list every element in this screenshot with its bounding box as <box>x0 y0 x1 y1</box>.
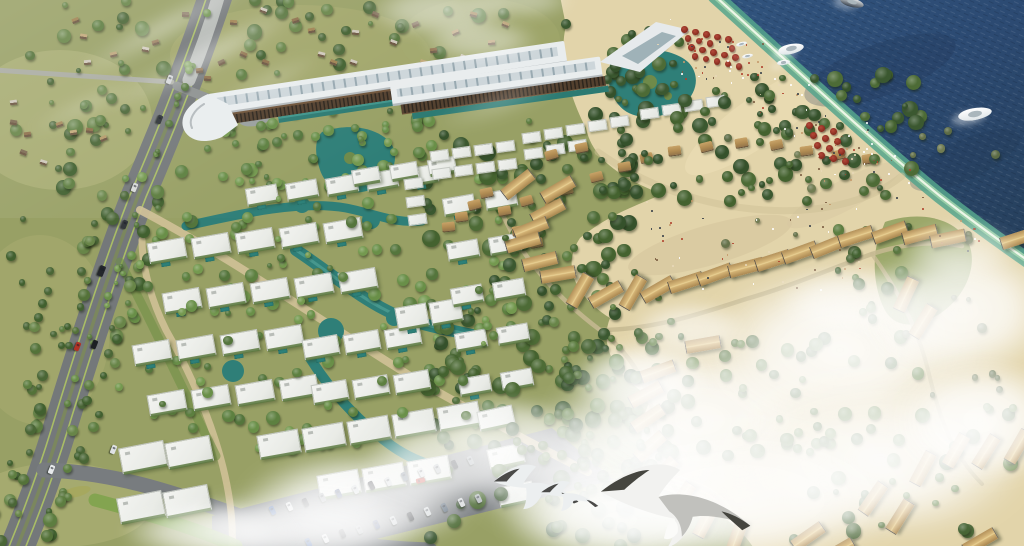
aerial-resort-rendering <box>0 0 1024 546</box>
cloud <box>420 18 540 63</box>
seagull <box>588 452 783 546</box>
cloud <box>630 300 750 360</box>
cloud <box>775 265 925 335</box>
cloud <box>900 220 1020 280</box>
gull-large-icon <box>588 452 783 546</box>
cloud <box>430 395 570 465</box>
mist-wisp <box>428 62 571 142</box>
seagull <box>540 476 602 516</box>
gull-medium-icon <box>540 476 602 516</box>
clouds-and-birds-layer <box>0 0 1024 546</box>
